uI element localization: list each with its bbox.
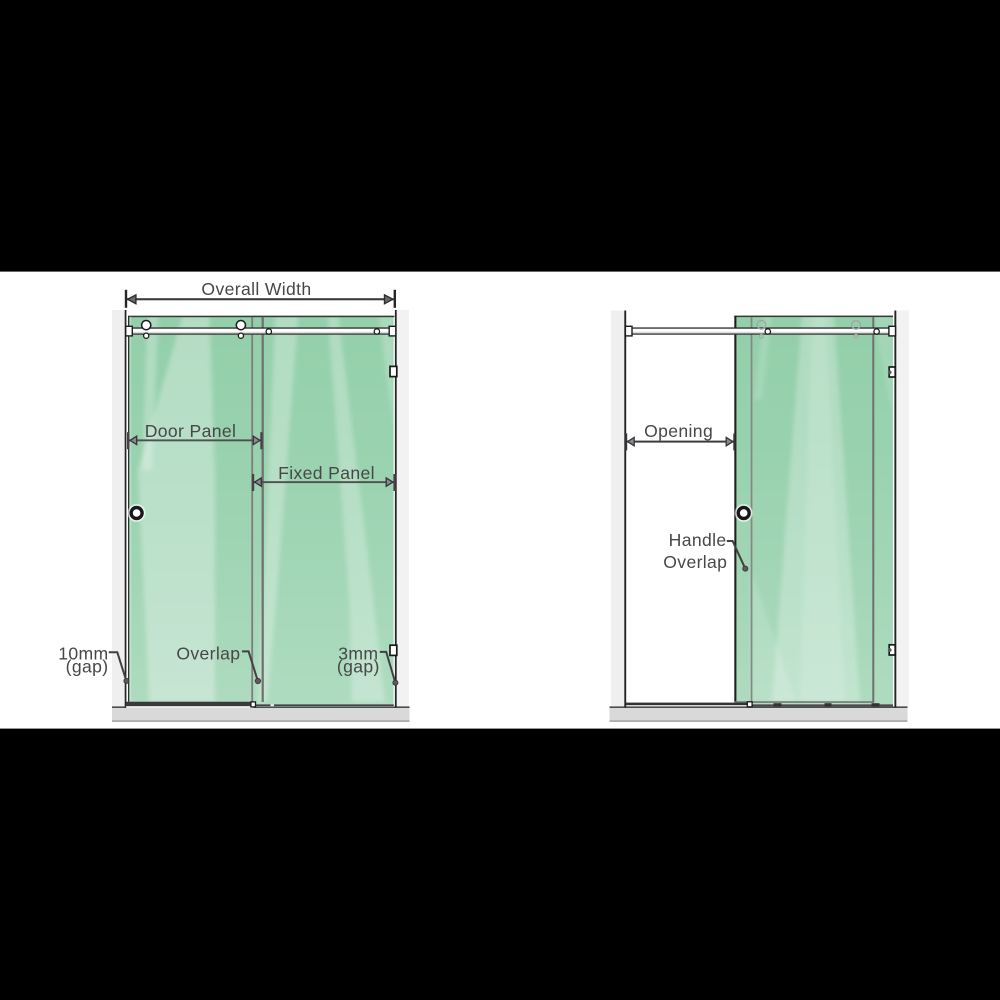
svg-text:Handle: Handle xyxy=(669,530,727,550)
svg-text:(gap): (gap) xyxy=(337,656,380,676)
svg-text:Overlap: Overlap xyxy=(176,643,240,663)
svg-text:Overlap: Overlap xyxy=(663,552,727,572)
svg-text:(gap): (gap) xyxy=(66,656,109,676)
svg-text:Door Panel: Door Panel xyxy=(145,421,237,441)
svg-text:Opening: Opening xyxy=(644,421,713,441)
svg-text:Overall Width: Overall Width xyxy=(201,279,311,299)
svg-text:Fixed Panel: Fixed Panel xyxy=(278,463,375,483)
